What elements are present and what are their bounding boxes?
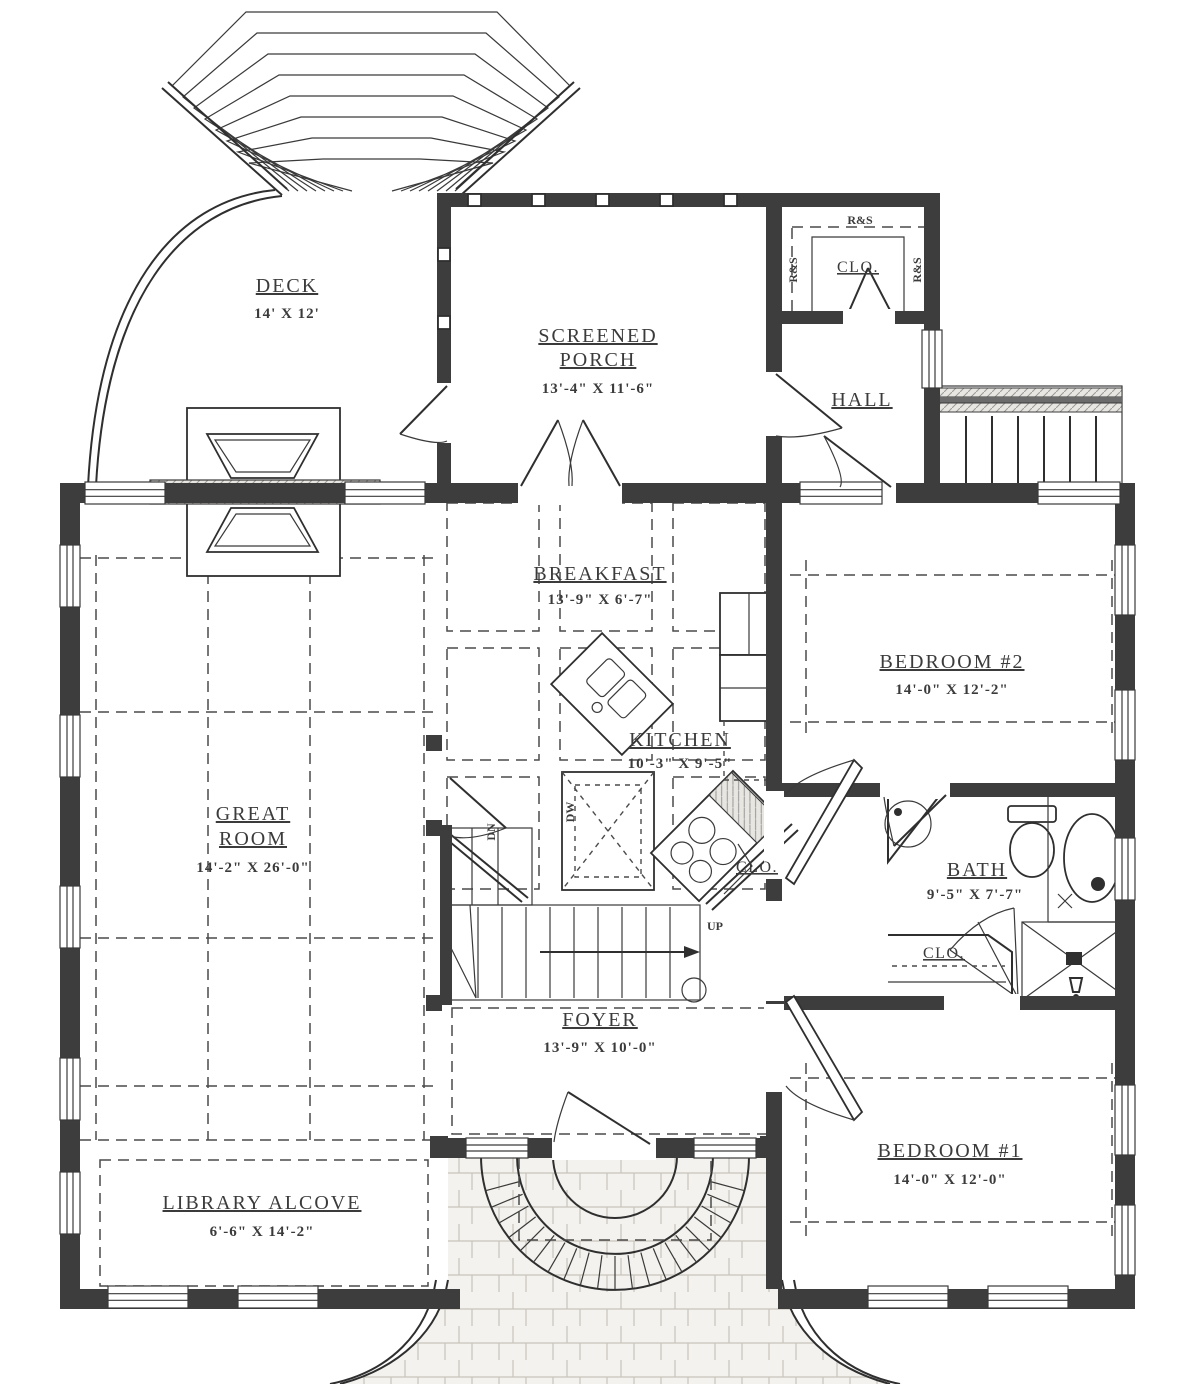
library-alcove-label: LIBRARY ALCOVE: [163, 1192, 362, 1214]
great-room-dims: 14'-2" X 26'-0": [196, 860, 309, 876]
bedroom2-dims: 14'-0" X 12'-2": [895, 682, 1008, 698]
tub-faucet: [1058, 894, 1072, 908]
rod-shelf-top: R&S: [847, 213, 873, 227]
down-label: DN: [484, 823, 498, 841]
range: [651, 771, 781, 901]
dishwasher-label: DW: [563, 802, 577, 823]
breakfast-label: BREAKFAST: [533, 563, 666, 585]
exterior-stair: [938, 386, 1122, 490]
foyer-label: FOYER: [562, 1009, 638, 1031]
rod-shelf-left: R&S: [786, 257, 800, 283]
bedroom2-door: [786, 760, 862, 884]
bath-label: BATH: [947, 859, 1007, 881]
tub-drain: [1091, 877, 1105, 891]
kitchen-closet-label: CLO.: [736, 859, 778, 876]
great-room-label-2: ROOM: [219, 828, 287, 850]
rod-shelf-right: R&S: [910, 257, 924, 283]
up-label: UP: [707, 919, 723, 933]
bath-faucet: [894, 808, 902, 816]
toilet-tank: [1008, 806, 1056, 822]
bath-door: [894, 795, 946, 846]
screened-porch-label-1: SCREENED: [538, 325, 657, 347]
bedroom1-dims: 14'-0" X 12'-0": [893, 1172, 1006, 1188]
up-arrow: [684, 946, 700, 958]
deck-label: DECK: [256, 275, 318, 297]
screened-porch-dims: 13'-4" X 11'-6": [542, 381, 655, 397]
stair-newel: [682, 978, 706, 1002]
hall-label: HALL: [831, 389, 892, 411]
bedroom2-label: BEDROOM #2: [879, 651, 1024, 673]
shower-head: [1070, 978, 1082, 992]
closet-top-label: CLO.: [837, 259, 879, 276]
french-doors: [521, 420, 620, 486]
breakfast-dims: 13'-9" X 6'-7": [548, 592, 653, 608]
bath-sink: [885, 801, 931, 847]
kitchen-dims: 10'-3" X 9'-5": [628, 756, 733, 772]
bedroom1-door: [786, 996, 862, 1120]
floor-plan-drawing: DECK 14' X 12' SCREENED PORCH 13'-4" X 1…: [0, 0, 1200, 1384]
tub: [1064, 814, 1120, 902]
screened-porch-label-2: PORCH: [560, 349, 637, 371]
bath-dims: 9'-5" X 7'-7": [927, 887, 1023, 903]
entry-porch: [330, 1156, 900, 1384]
floor-plan-page: DECK 14' X 12' SCREENED PORCH 13'-4" X 1…: [0, 0, 1200, 1384]
deck-dims: 14' X 12': [254, 306, 320, 322]
bath-closet-label: CLO.: [923, 945, 965, 962]
foyer-dims: 13'-9" X 10'-0": [543, 1040, 656, 1056]
great-room-label-1: GREAT: [216, 803, 290, 825]
bedroom1-label: BEDROOM #1: [877, 1140, 1022, 1162]
library-alcove-dims: 6'-6" X 14'-2": [210, 1224, 315, 1240]
hall-door: [824, 436, 891, 487]
deck-roof-steps: [172, 12, 570, 191]
kitchen-label: KITCHEN: [629, 729, 731, 751]
